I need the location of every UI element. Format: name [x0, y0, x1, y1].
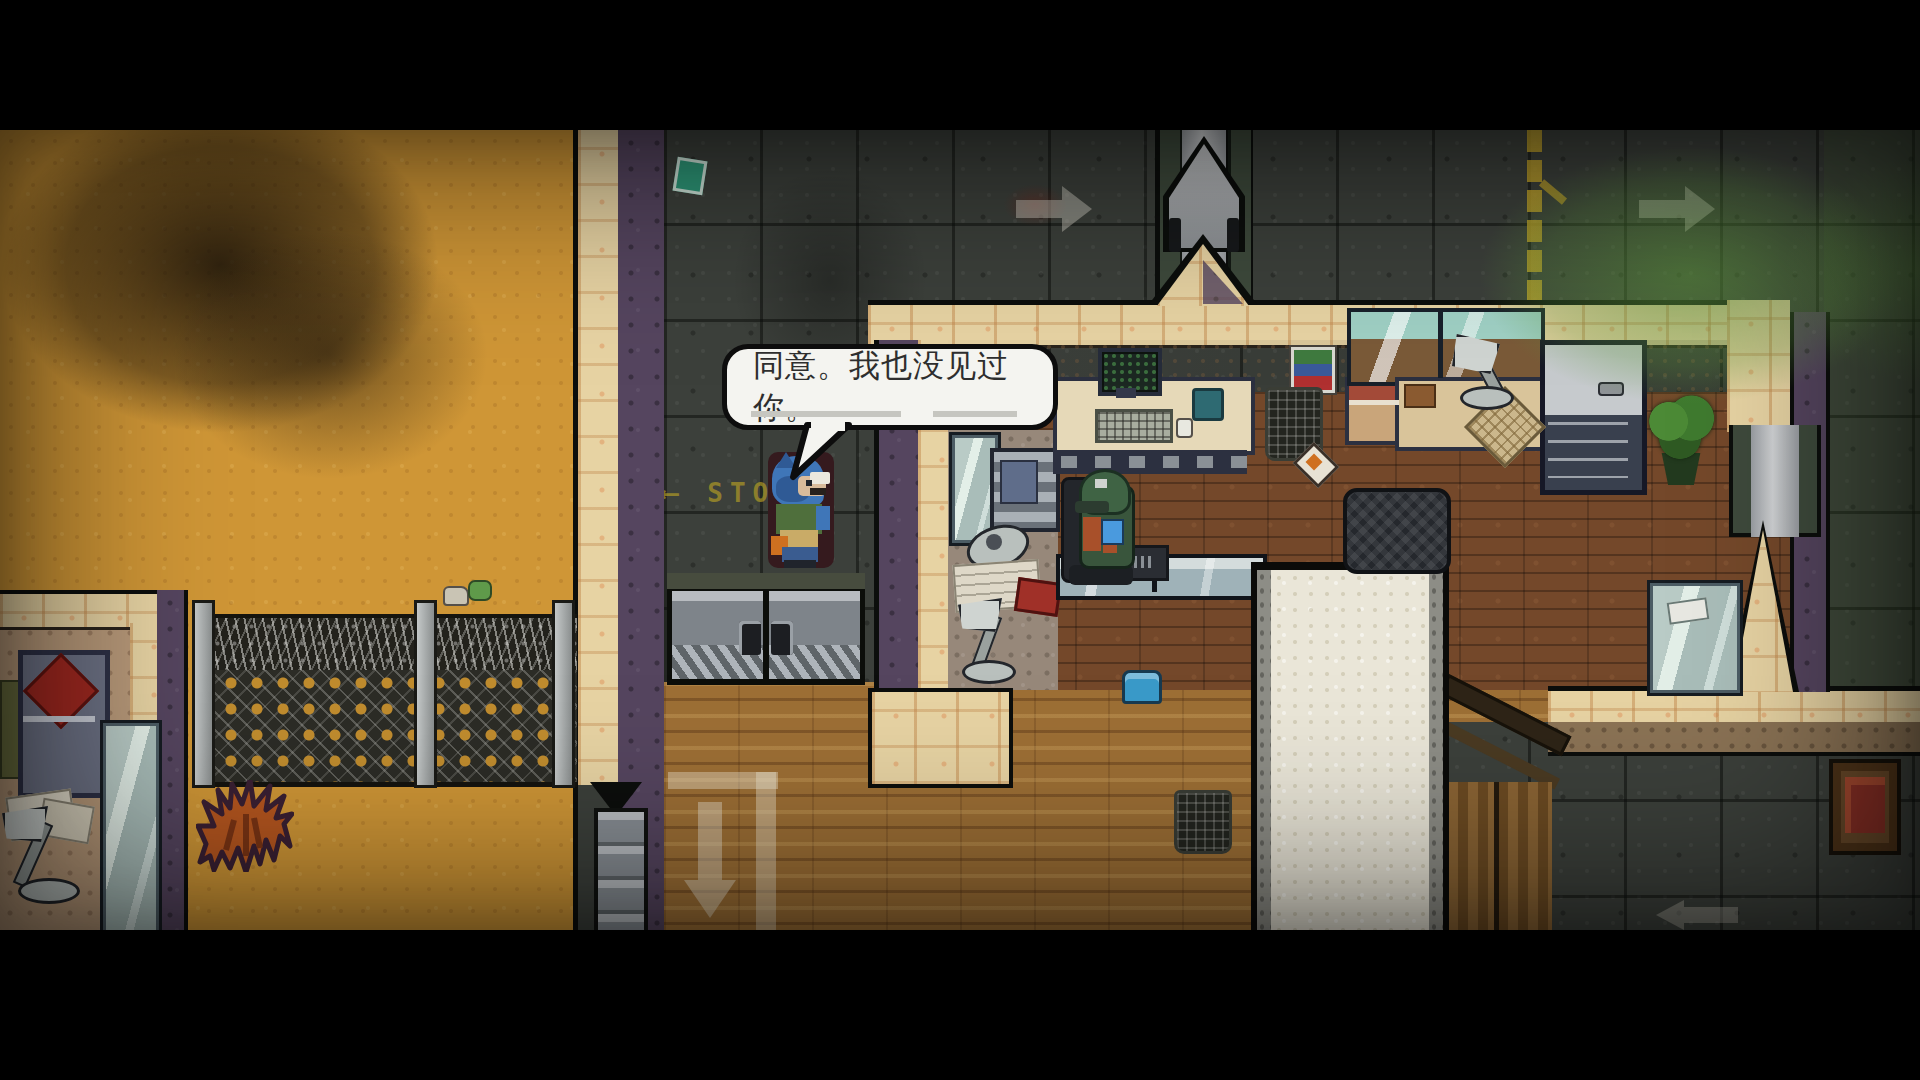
- prison-yard-scene: ⟵ STOP: [0, 130, 1920, 930]
- game-screen: ⟵ STOP: [0, 0, 1920, 1080]
- dialogue-text: 同意。我也没见过你。: [727, 349, 1053, 429]
- speech-bubble[interactable]: 同意。我也没见过你。: [722, 344, 1058, 430]
- bubble-tail: [783, 421, 853, 483]
- vignette: [0, 130, 1920, 930]
- bubble-underline-left: [751, 411, 901, 417]
- letterbox-top: [0, 0, 1920, 130]
- letterbox-bottom: [0, 930, 1920, 1080]
- bubble-underline-right: [933, 411, 1017, 417]
